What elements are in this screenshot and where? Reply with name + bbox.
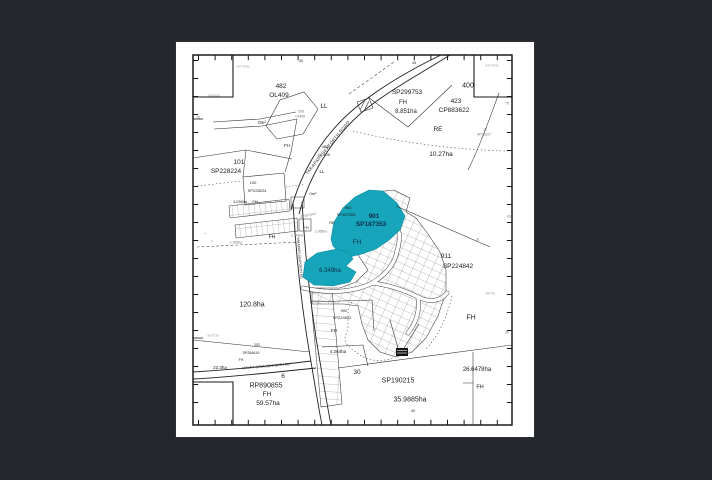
plan-document bbox=[176, 42, 534, 437]
